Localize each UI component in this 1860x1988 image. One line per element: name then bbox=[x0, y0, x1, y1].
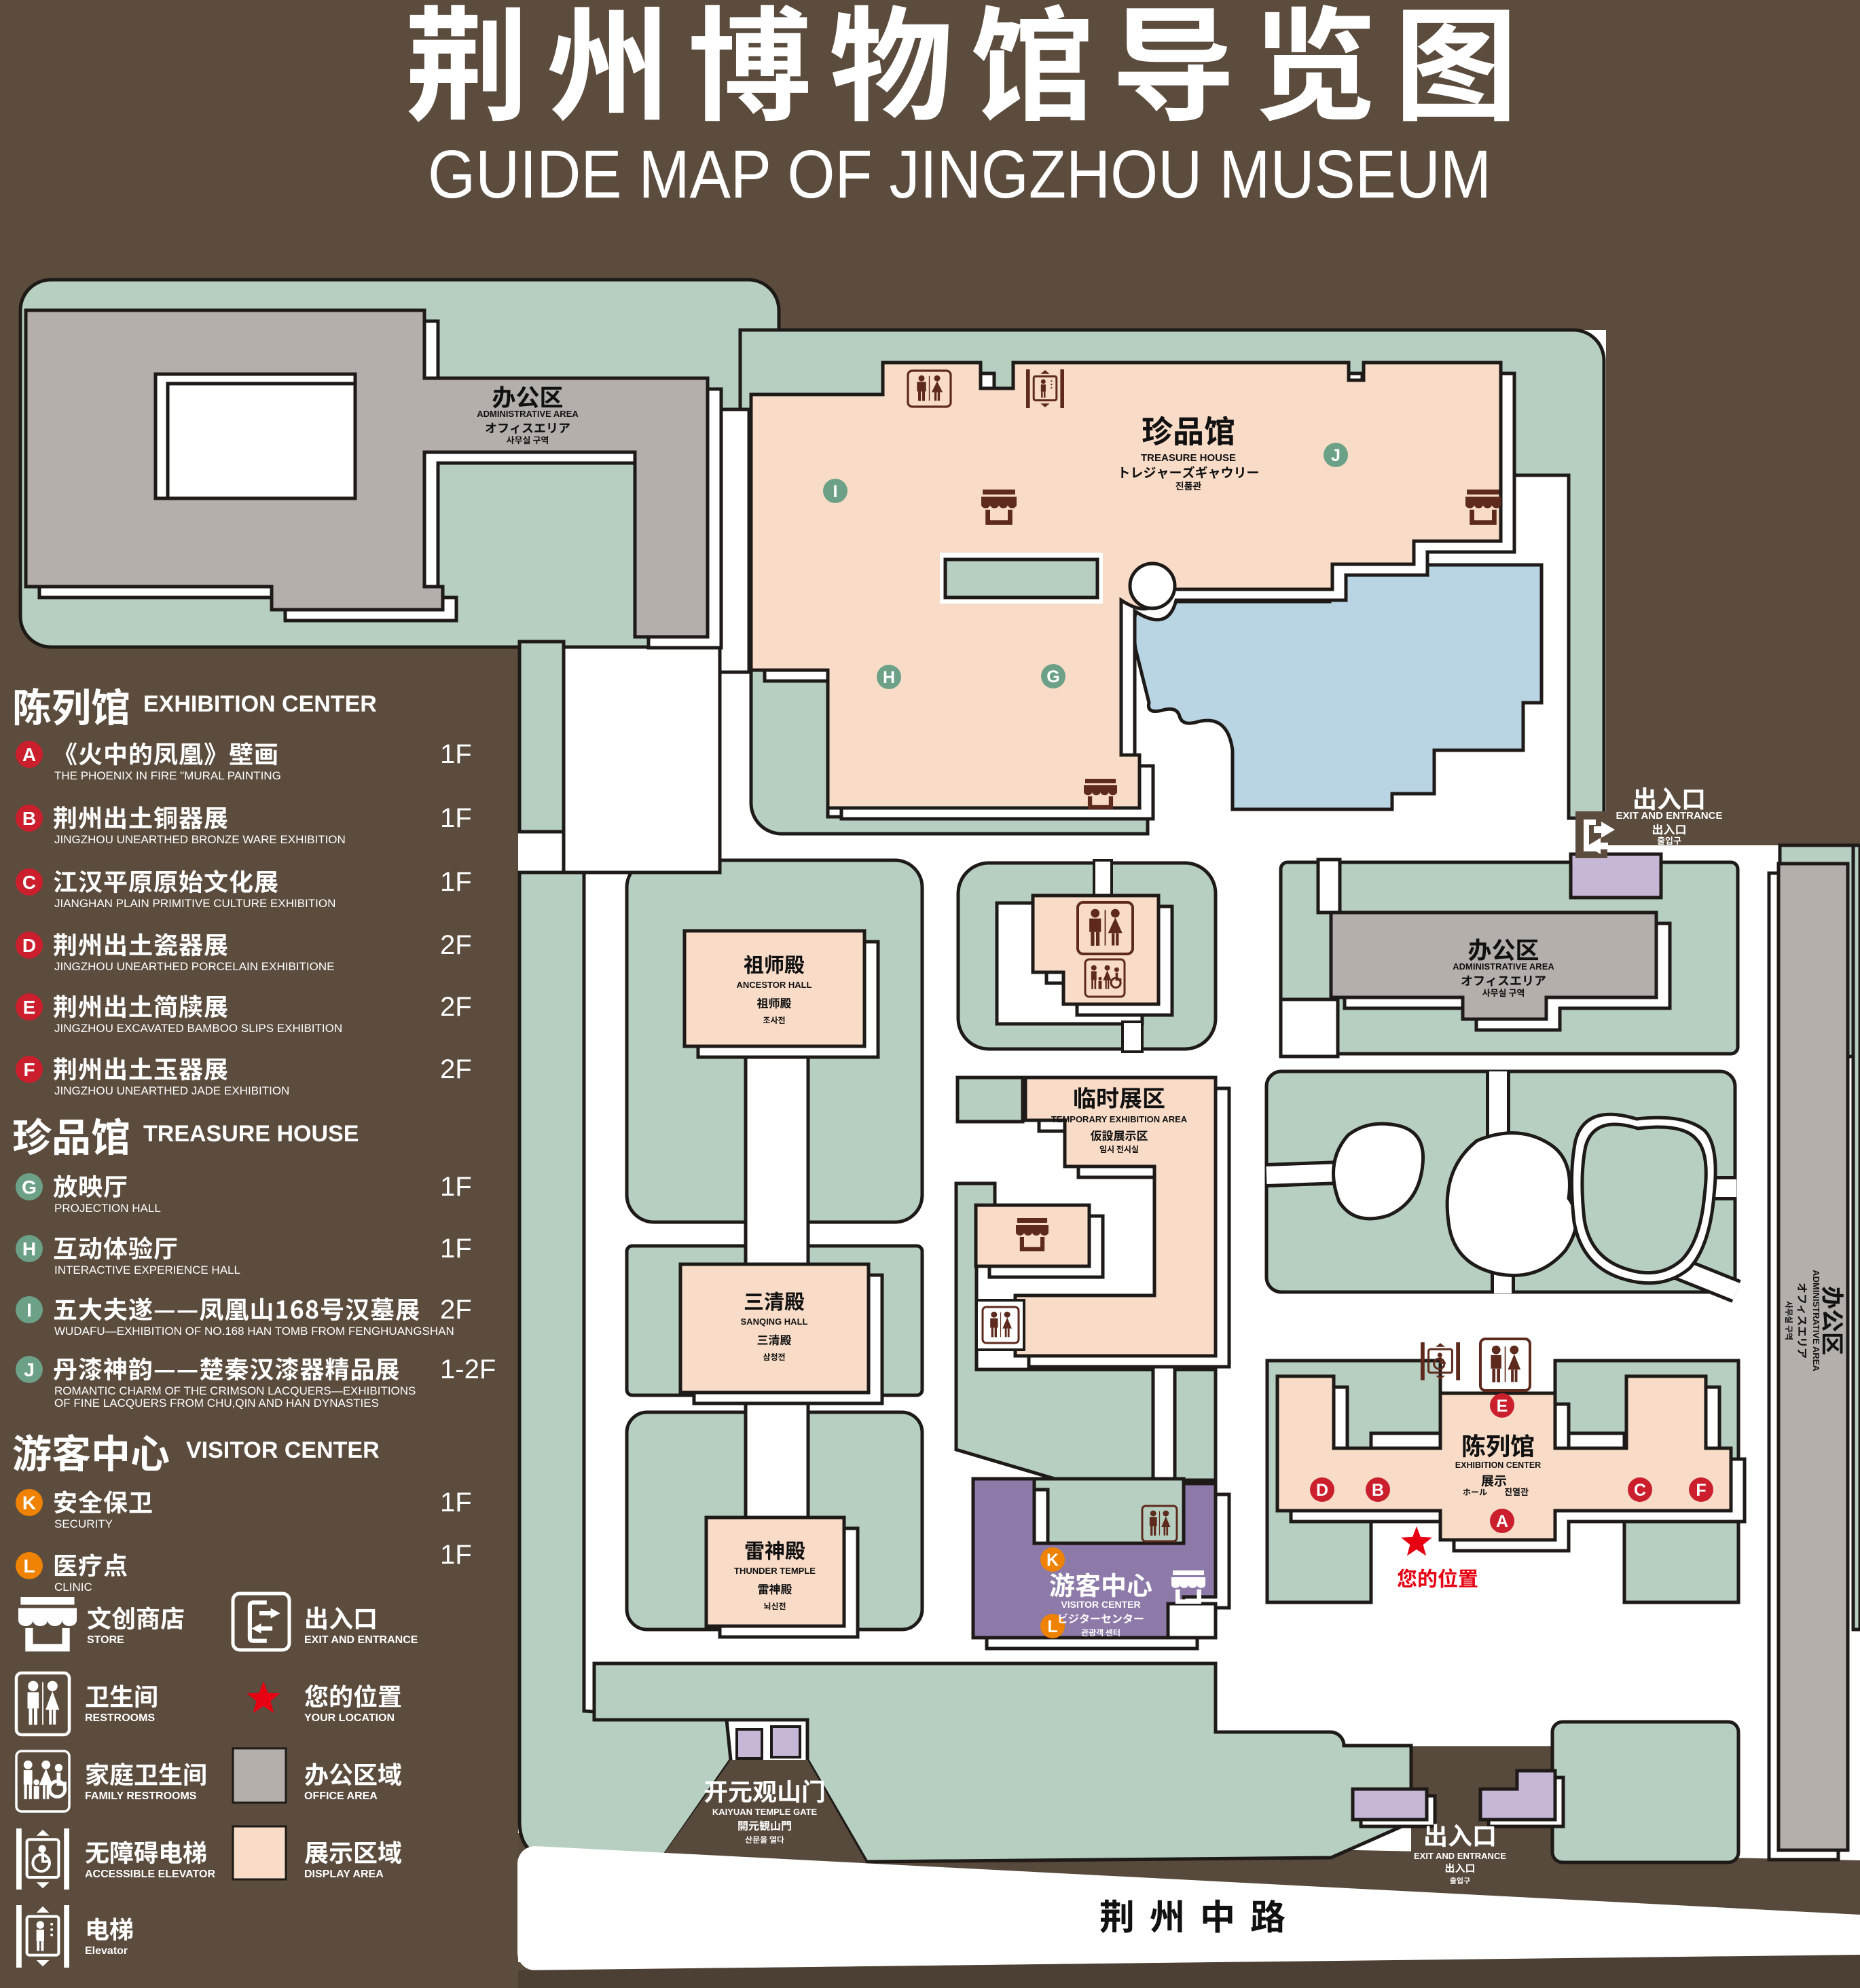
svg-text:1F: 1F bbox=[440, 867, 472, 897]
svg-text:1F: 1F bbox=[440, 739, 472, 769]
svg-text:1F: 1F bbox=[440, 1540, 472, 1570]
svg-text:C: C bbox=[22, 872, 36, 893]
svg-text:J: J bbox=[1331, 446, 1341, 465]
svg-text:VISITOR CENTER: VISITOR CENTER bbox=[186, 1437, 380, 1463]
svg-text:EXIT AND ENTRANCE: EXIT AND ENTRANCE bbox=[1414, 1851, 1506, 1861]
svg-text:Elevator: Elevator bbox=[85, 1945, 128, 1957]
svg-text:KAIYUAN TEMPLE GATE: KAIYUAN TEMPLE GATE bbox=[712, 1807, 818, 1817]
svg-text:THE PHOENIX IN FIRE "MURAL PAI: THE PHOENIX IN FIRE "MURAL PAINTING bbox=[54, 769, 281, 782]
svg-text:JIANGHAN PLAIN PRIMITIVE CULTU: JIANGHAN PLAIN PRIMITIVE CULTURE EXHIBIT… bbox=[54, 897, 335, 910]
svg-text:K: K bbox=[1046, 1551, 1059, 1570]
svg-text:JINGZHOU UNEARTHED JADE EXHIBI: JINGZHOU UNEARTHED JADE EXHIBITION bbox=[54, 1084, 289, 1097]
svg-text:OF FINE LACQUERS FROM CHU,QIN: OF FINE LACQUERS FROM CHU,QIN AND HAN DY… bbox=[54, 1397, 379, 1410]
svg-text:H: H bbox=[22, 1238, 36, 1259]
svg-text:DISPLAY AREA: DISPLAY AREA bbox=[304, 1869, 384, 1880]
svg-text:WUDAFU—EXHIBITION OF NO.168 HA: WUDAFU—EXHIBITION OF NO.168 HAN TOMB FRO… bbox=[54, 1325, 454, 1338]
svg-text:EXHIBITION CENTER: EXHIBITION CENTER bbox=[143, 691, 377, 717]
svg-text:1F: 1F bbox=[440, 1234, 472, 1264]
svg-text:STORE: STORE bbox=[87, 1634, 124, 1646]
svg-text:TREASURE HOUSE: TREASURE HOUSE bbox=[143, 1121, 359, 1147]
svg-text:JINGZHOU UNEARTHED BRONZE WARE: JINGZHOU UNEARTHED BRONZE WARE EXHIBITIO… bbox=[54, 833, 346, 846]
svg-text:SECURITY: SECURITY bbox=[54, 1517, 113, 1530]
svg-text:JINGZHOU UNEARTHED PORCELAIN E: JINGZHOU UNEARTHED PORCELAIN EXHIBITIONE bbox=[54, 960, 334, 973]
svg-text:RESTROOMS: RESTROOMS bbox=[85, 1712, 155, 1724]
svg-text:G: G bbox=[1046, 667, 1059, 686]
svg-text:L: L bbox=[1047, 1617, 1057, 1636]
svg-text:YOUR LOCATION: YOUR LOCATION bbox=[304, 1712, 395, 1724]
svg-text:1F: 1F bbox=[440, 803, 472, 833]
svg-text:2F: 2F bbox=[440, 1295, 472, 1325]
svg-text:1F: 1F bbox=[440, 1172, 472, 1202]
svg-text:E: E bbox=[23, 997, 36, 1018]
svg-text:CLINIC: CLINIC bbox=[54, 1581, 92, 1594]
svg-text:K: K bbox=[22, 1492, 36, 1513]
svg-text:VISITOR CENTER: VISITOR CENTER bbox=[1061, 1599, 1140, 1610]
svg-text:INTERACTIVE EXPERIENCE HALL: INTERACTIVE EXPERIENCE HALL bbox=[54, 1264, 240, 1276]
svg-text:OFFICE AREA: OFFICE AREA bbox=[304, 1790, 378, 1802]
svg-text:D: D bbox=[22, 935, 36, 956]
svg-text:C: C bbox=[1634, 1481, 1646, 1500]
svg-text:SANQING HALL: SANQING HALL bbox=[741, 1317, 808, 1327]
svg-text:ADMINISTRATIVE AREA: ADMINISTRATIVE AREA bbox=[1811, 1270, 1821, 1372]
svg-text:EXIT AND ENTRANCE: EXIT AND ENTRANCE bbox=[304, 1634, 418, 1646]
svg-text:B: B bbox=[1372, 1481, 1384, 1500]
svg-text:A: A bbox=[1496, 1512, 1508, 1531]
svg-text:EXIT AND ENTRANCE: EXIT AND ENTRANCE bbox=[1616, 810, 1723, 822]
svg-text:J: J bbox=[24, 1359, 35, 1380]
svg-text:A: A bbox=[22, 744, 36, 765]
svg-text:E: E bbox=[1497, 1397, 1508, 1416]
svg-text:2F: 2F bbox=[440, 930, 472, 960]
svg-text:2F: 2F bbox=[440, 992, 472, 1022]
svg-text:F: F bbox=[1696, 1481, 1706, 1500]
svg-text:ROMANTIC CHARM OF THE CRIMSON: ROMANTIC CHARM OF THE CRIMSON LACQUERS—E… bbox=[54, 1384, 416, 1397]
svg-text:2F: 2F bbox=[440, 1054, 472, 1084]
svg-text:TREASURE HOUSE: TREASURE HOUSE bbox=[1141, 452, 1236, 464]
svg-text:F: F bbox=[23, 1059, 35, 1080]
svg-text:I: I bbox=[26, 1300, 32, 1321]
svg-text:GUIDE MAP OF JINGZHOU MUSEUM: GUIDE MAP OF JINGZHOU MUSEUM bbox=[428, 136, 1491, 213]
svg-text:JINGZHOU EXCAVATED BAMBOO SLIP: JINGZHOU EXCAVATED BAMBOO SLIPS EXHIBITI… bbox=[54, 1022, 342, 1035]
svg-text:D: D bbox=[1316, 1481, 1328, 1500]
svg-text:ADMINISTRATIVE AREA: ADMINISTRATIVE AREA bbox=[477, 409, 579, 419]
svg-text:ADMINISTRATIVE AREA: ADMINISTRATIVE AREA bbox=[1453, 961, 1554, 972]
svg-text:EXHIBITION CENTER: EXHIBITION CENTER bbox=[1455, 1460, 1541, 1470]
svg-text:I: I bbox=[833, 482, 838, 501]
svg-text:ACCESSIBLE ELEVATOR: ACCESSIBLE ELEVATOR bbox=[85, 1869, 215, 1880]
svg-text:ANCESTOR HALL: ANCESTOR HALL bbox=[737, 980, 812, 990]
svg-text:G: G bbox=[22, 1177, 37, 1198]
svg-text:FAMILY RESTROOMS: FAMILY RESTROOMS bbox=[85, 1790, 197, 1802]
svg-text:H: H bbox=[883, 668, 895, 687]
svg-text:1F: 1F bbox=[440, 1488, 472, 1517]
svg-text:PROJECTION HALL: PROJECTION HALL bbox=[54, 1202, 161, 1215]
svg-text:1-2F: 1-2F bbox=[440, 1355, 496, 1384]
svg-text:L: L bbox=[23, 1556, 35, 1577]
svg-text:TEMPORARY EXHIBITION AREA: TEMPORARY EXHIBITION AREA bbox=[1051, 1114, 1188, 1124]
svg-text:B: B bbox=[22, 808, 36, 829]
svg-text:THUNDER TEMPLE: THUNDER TEMPLE bbox=[734, 1566, 816, 1576]
